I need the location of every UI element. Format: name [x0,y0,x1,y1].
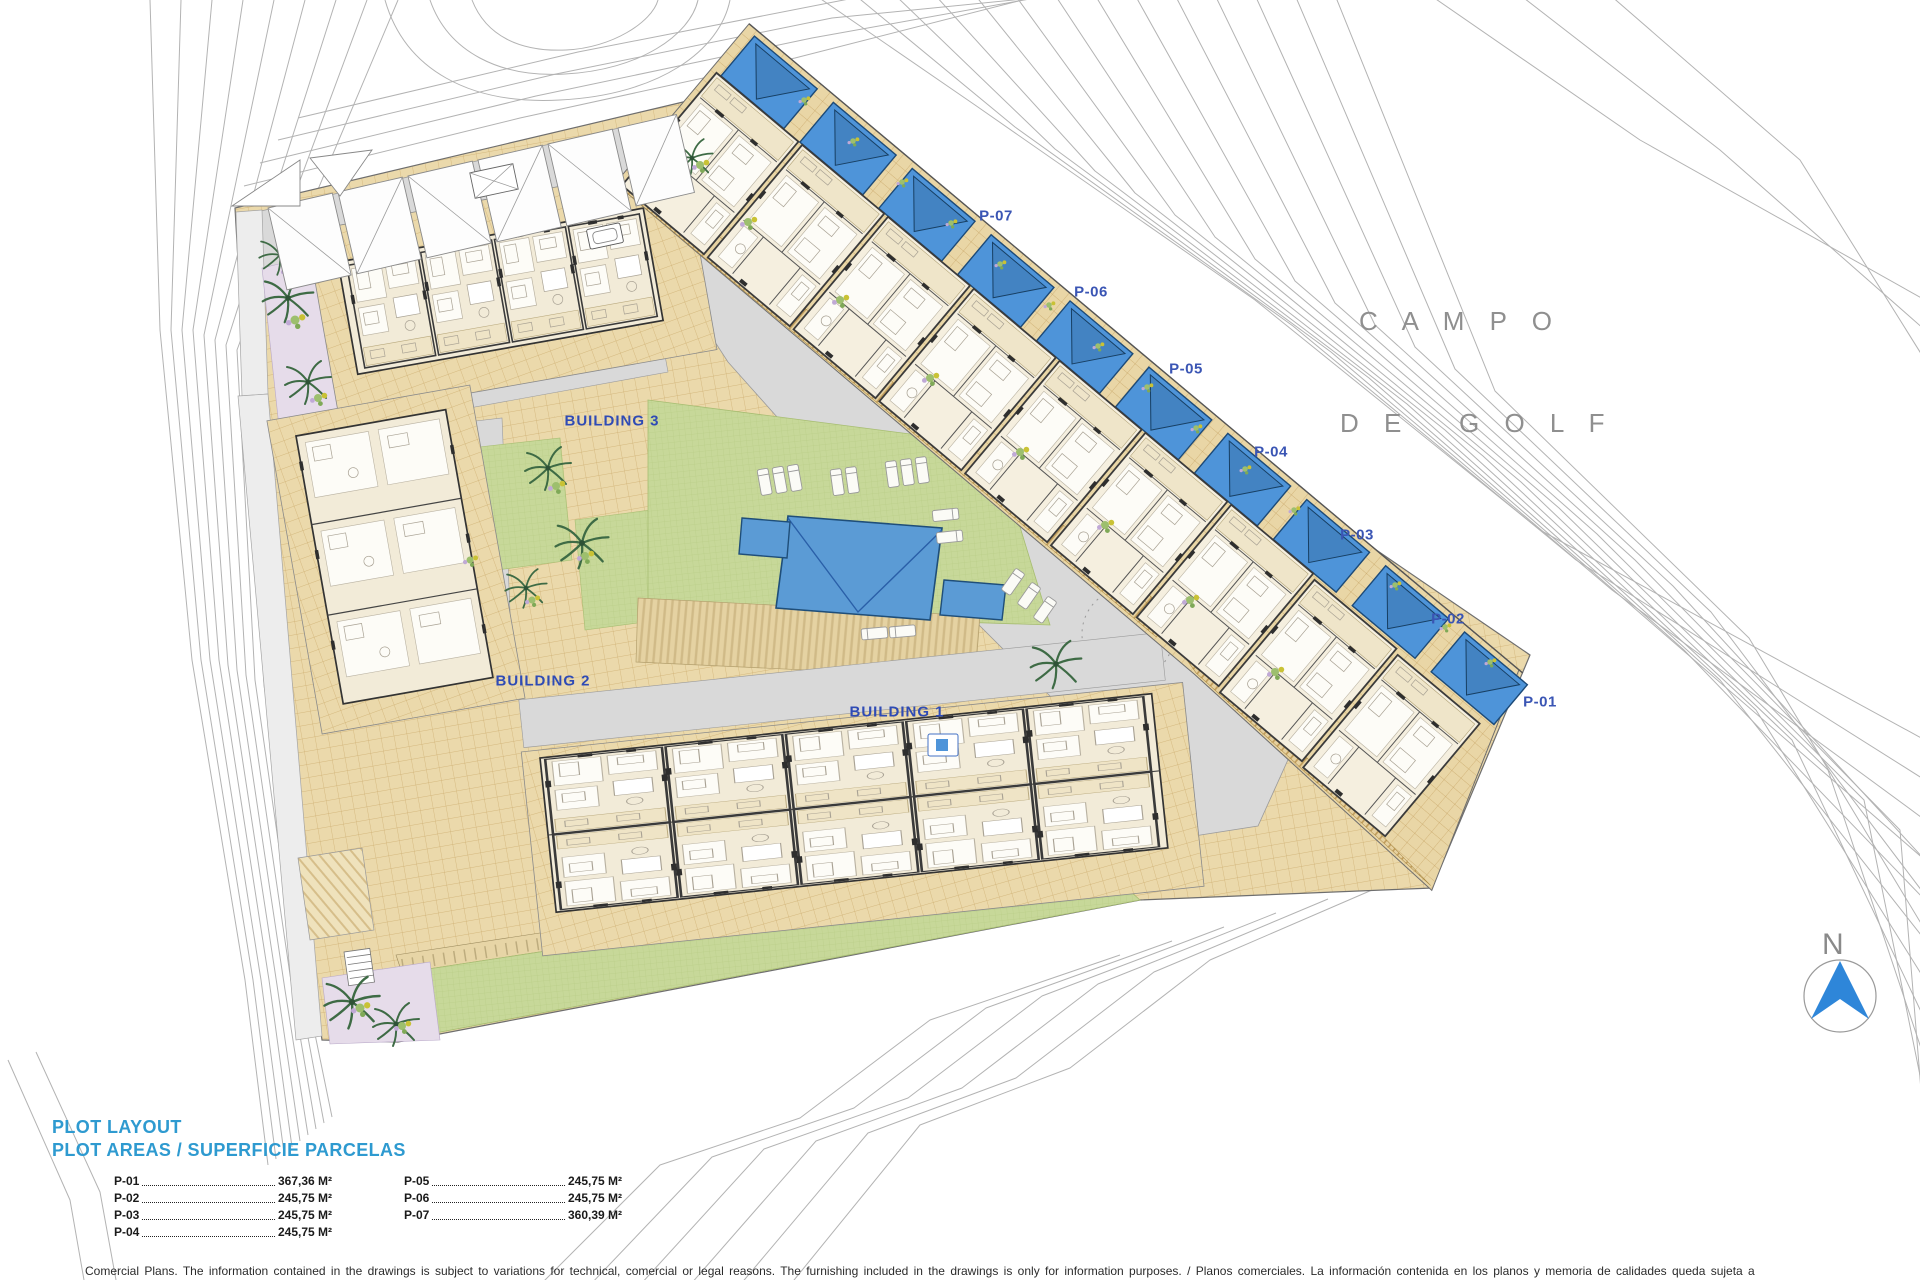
legend-columns: P-01367,36 M² P-02245,75 M² P-03245,75 M… [52,1174,692,1242]
legend-plot-id: P-05 [404,1174,429,1188]
legend-plot-area: 245,75 M² [568,1191,622,1205]
golf-course-label: C A M P O D E G O L F [1340,236,1580,474]
dotted-leader [142,1235,275,1237]
accessible-spot-icon [928,734,958,756]
legend-row-p07: P-07360,39 M² [404,1208,622,1222]
legend-row-p06: P-06245,75 M² [404,1191,622,1205]
plot-label-p01: P-01 [1523,694,1557,711]
building-2-label: BUILDING 2 [495,673,590,690]
legend-plot-area: 360,39 M² [568,1208,622,1222]
legend-plot-id: P-07 [404,1208,429,1222]
legend-plot-area: 245,75 M² [278,1191,332,1205]
legend-column-left: P-01367,36 M² P-02245,75 M² P-03245,75 M… [114,1174,332,1242]
legend: PLOT LAYOUT PLOT AREAS / SUPERFICIE PARC… [52,1116,692,1242]
building-3-label: BUILDING 3 [564,413,659,430]
golf-course-label-line1: C A M P O [1340,304,1580,338]
legend-plot-area: 367,36 M² [278,1174,332,1188]
plot-layout-page: P-07 P-06 P-05 P-04 P-03 P-02 P-01 BUILD… [0,0,1920,1280]
legend-plot-area: 245,75 M² [278,1208,332,1222]
legend-row-p01: P-01367,36 M² [114,1174,332,1188]
dotted-leader [142,1184,275,1186]
legend-row-p03: P-03245,75 M² [114,1208,332,1222]
plot-label-p07: P-07 [979,208,1013,225]
dotted-leader [432,1184,565,1186]
legend-plot-area: 245,75 M² [278,1225,332,1239]
legend-plot-id: P-04 [114,1225,139,1239]
legend-plot-id: P-03 [114,1208,139,1222]
legend-plot-id: P-02 [114,1191,139,1205]
legend-subtitle: PLOT AREAS / SUPERFICIE PARCELAS [52,1139,692,1162]
dotted-leader [142,1218,275,1220]
legend-row-p04: P-04245,75 M² [114,1225,332,1239]
north-label: N [1822,928,1844,962]
legend-title: PLOT LAYOUT [52,1116,692,1139]
plot-label-p02: P-02 [1431,611,1465,628]
dotted-leader [142,1201,275,1203]
north-arrow [1804,960,1876,1032]
building-1-label: BUILDING 1 [849,704,944,721]
plot-label-p06: P-06 [1074,284,1108,301]
plot-label-p05: P-05 [1169,361,1203,378]
legend-plot-area: 245,75 M² [568,1174,622,1188]
legend-column-right: P-05245,75 M² P-06245,75 M² P-07360,39 M… [404,1174,622,1242]
legend-row-p05: P-05245,75 M² [404,1174,622,1188]
legend-plot-id: P-06 [404,1191,429,1205]
legend-row-p02: P-02245,75 M² [114,1191,332,1205]
site-plan-drawing [0,0,1920,1280]
disclaimer: Comercial Plans. The information contain… [85,1264,1840,1280]
golf-course-label-line2: D E G O L F [1340,406,1580,440]
disclaimer-line1: Comercial Plans. The information contain… [85,1264,1840,1278]
legend-plot-id: P-01 [114,1174,139,1188]
dotted-leader [432,1218,565,1220]
plot-label-p03: P-03 [1340,527,1374,544]
dotted-leader [432,1201,565,1203]
plot-label-p04: P-04 [1254,444,1288,461]
